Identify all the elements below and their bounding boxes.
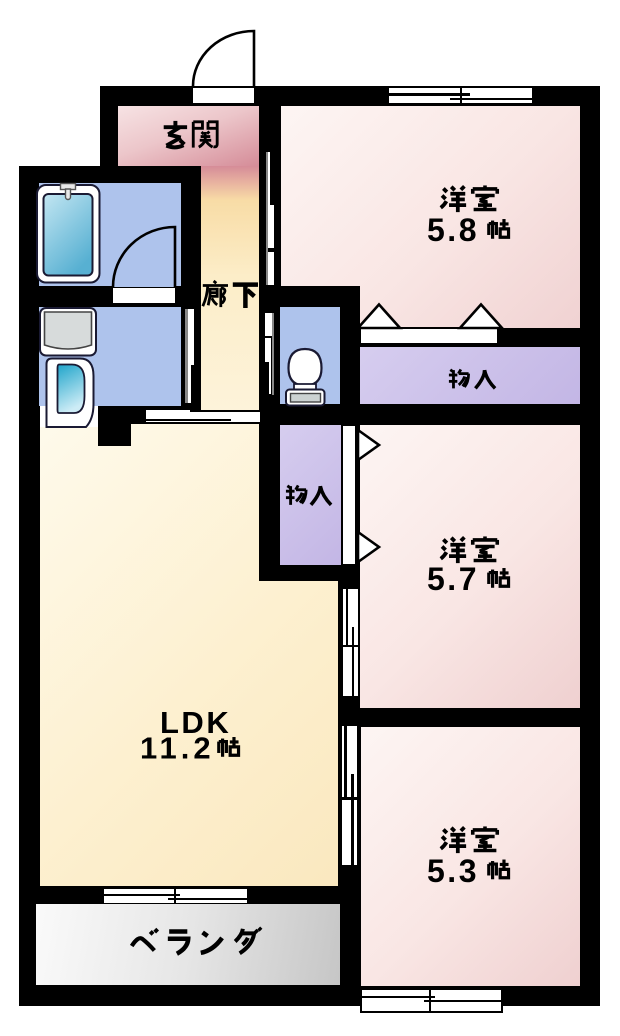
svg-text:11.2: 11.2 [140,731,215,766]
svg-text:5.3: 5.3 [427,853,479,889]
svg-text:5.8: 5.8 [427,212,479,248]
svg-text:5.7: 5.7 [427,561,479,597]
